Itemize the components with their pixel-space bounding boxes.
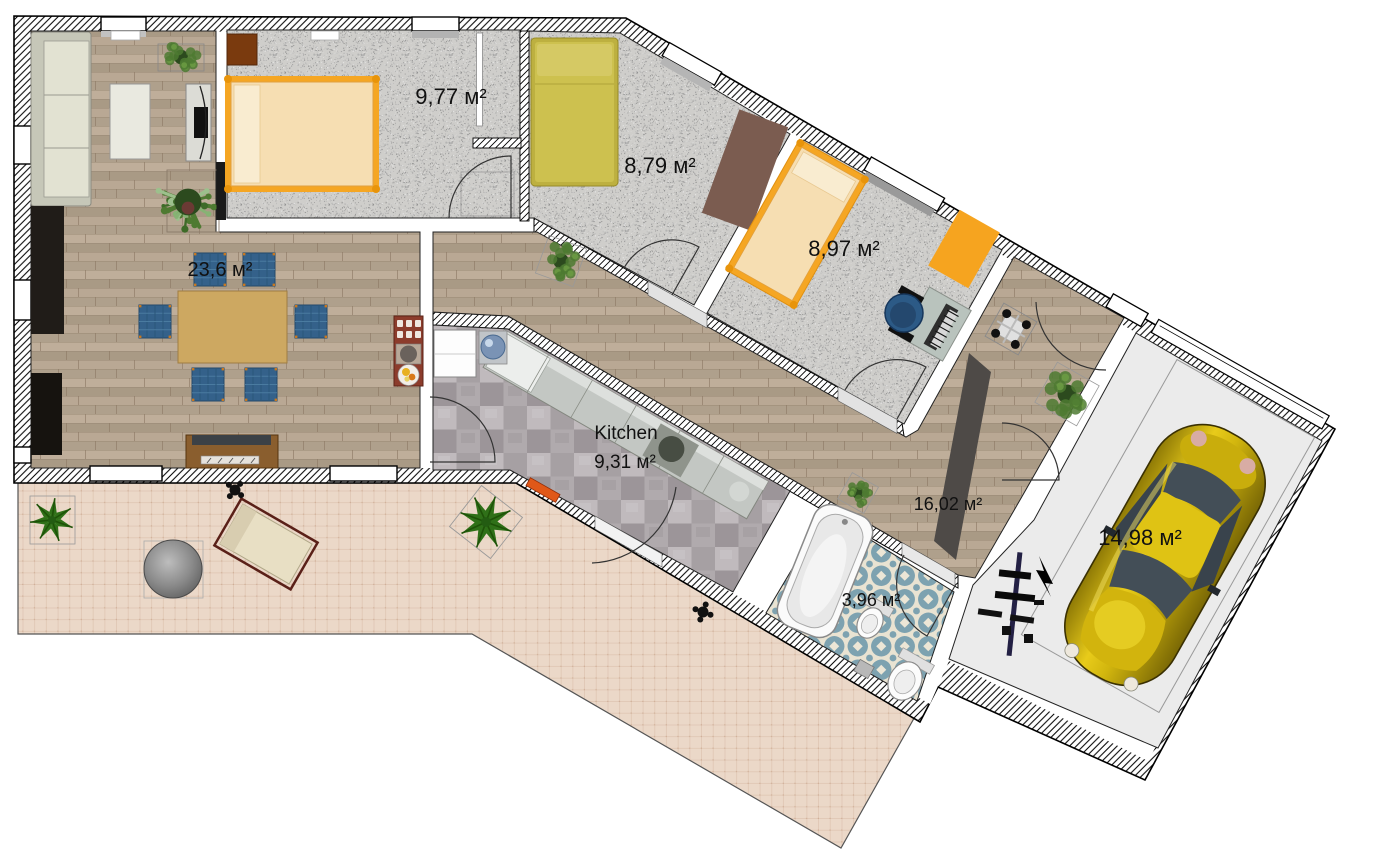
svg-text:16,02 м²: 16,02 м² (914, 494, 982, 514)
svg-text:Kitchen: Kitchen (594, 423, 657, 444)
svg-text:14,98 м²: 14,98 м² (1098, 525, 1182, 550)
svg-text:8,97 м²: 8,97 м² (808, 236, 879, 261)
svg-text:3,96 м²: 3,96 м² (842, 590, 900, 610)
svg-text:9,77 м²: 9,77 м² (415, 84, 486, 109)
svg-text:8,79 м²: 8,79 м² (624, 153, 695, 178)
svg-text:9,31 м²: 9,31 м² (594, 452, 656, 473)
svg-text:23,6 м²: 23,6 м² (188, 259, 253, 281)
